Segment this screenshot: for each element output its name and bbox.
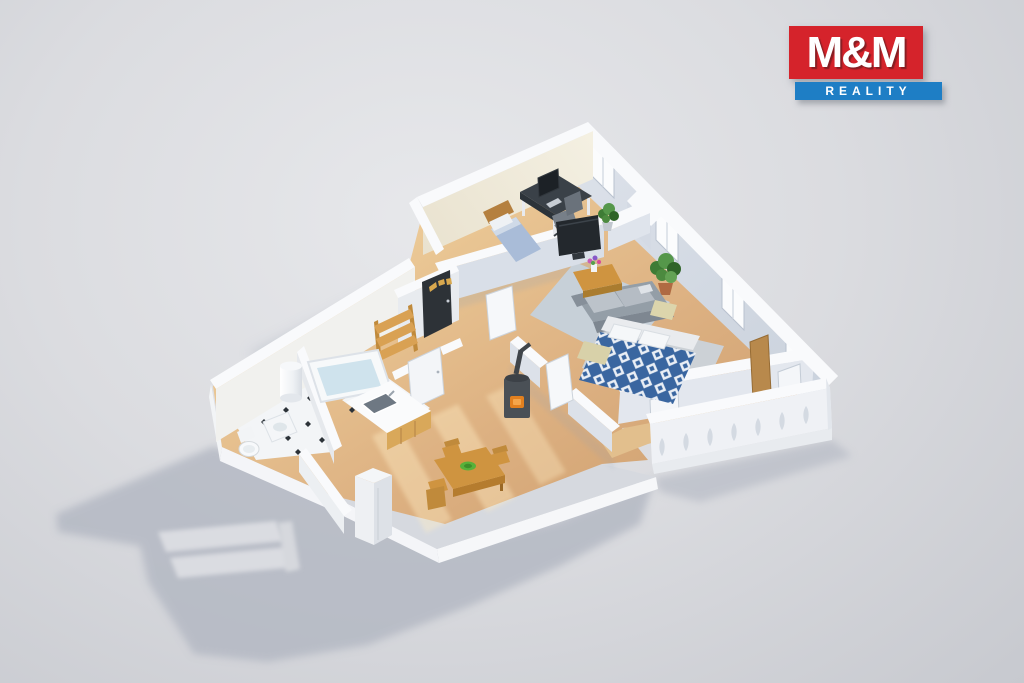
tall-cabinet xyxy=(355,468,392,545)
balcony-door-wood xyxy=(750,335,771,399)
floorplan-render-canvas: M&M REALITY xyxy=(0,0,1024,683)
agency-logo-subtitle: REALITY xyxy=(825,84,911,98)
open-door-leaf xyxy=(546,354,573,410)
flower-vase xyxy=(591,264,597,272)
water-heater xyxy=(280,362,302,403)
agency-logo: M&M xyxy=(789,26,923,79)
door-handle xyxy=(447,300,450,303)
floorplan-3d-svg xyxy=(0,0,1024,683)
open-door-leaf xyxy=(486,286,516,340)
agency-logo-title: M&M xyxy=(806,31,905,75)
agency-logo-subtitle-bar: REALITY xyxy=(795,82,942,100)
